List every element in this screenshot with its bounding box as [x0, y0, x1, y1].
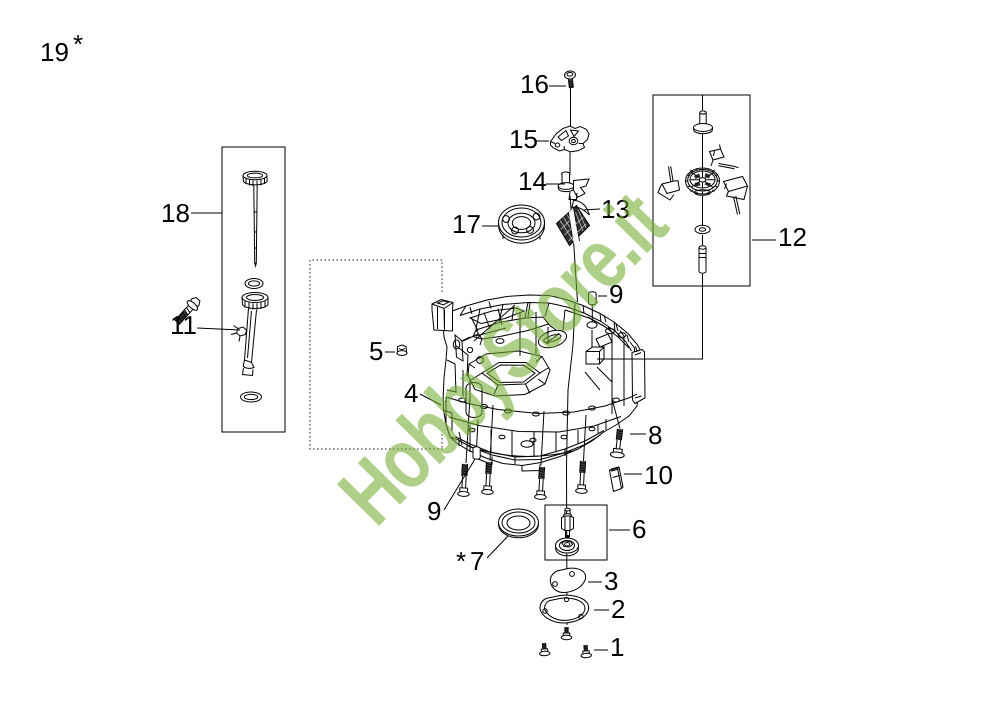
svg-text:16: 16: [520, 69, 549, 99]
svg-text:10: 10: [644, 460, 673, 490]
svg-text:12: 12: [778, 222, 807, 252]
svg-text:3: 3: [604, 566, 618, 596]
svg-text:5: 5: [369, 336, 383, 366]
svg-text:*: *: [73, 29, 83, 59]
svg-text:11: 11: [170, 310, 197, 340]
svg-text:*: *: [456, 546, 466, 576]
svg-text:18: 18: [161, 198, 190, 228]
svg-text:1: 1: [610, 632, 624, 662]
svg-text:2: 2: [611, 594, 625, 624]
svg-text:15: 15: [509, 124, 538, 154]
svg-text:8: 8: [648, 420, 662, 450]
svg-text:7: 7: [470, 546, 484, 576]
svg-text:14: 14: [518, 166, 547, 196]
svg-text:19: 19: [40, 37, 69, 67]
svg-text:17: 17: [452, 209, 481, 239]
svg-text:6: 6: [632, 514, 646, 544]
